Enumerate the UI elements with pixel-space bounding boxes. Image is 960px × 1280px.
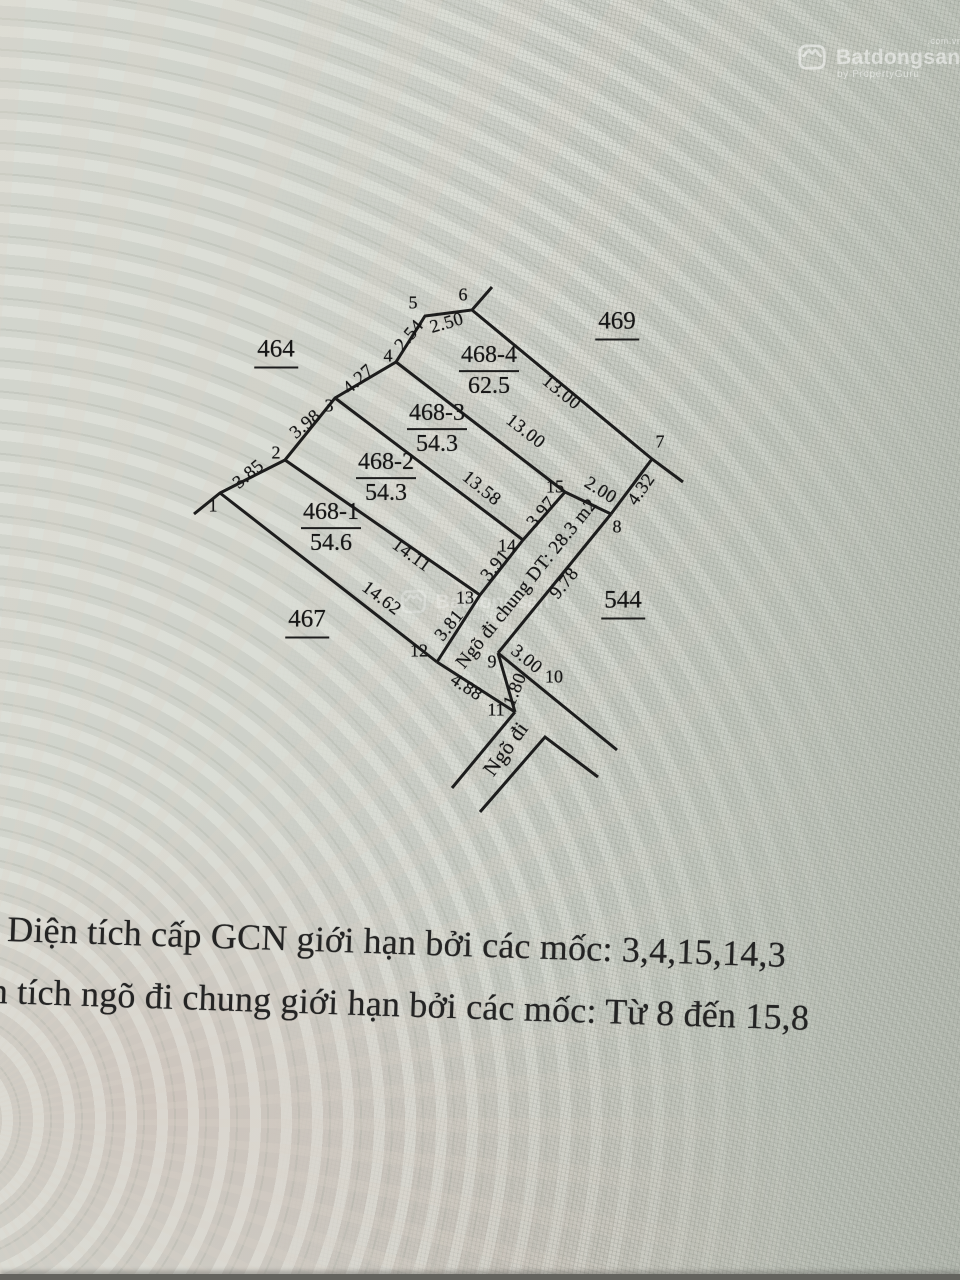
parcel-label-468-1: 468-1 54.6	[301, 499, 361, 557]
parcel-area: 54.6	[301, 530, 361, 557]
parcel-area: 54.3	[356, 480, 416, 507]
neighbor-parcel-label-469: 469	[595, 308, 639, 341]
parcel-id: 468-4	[459, 342, 519, 372]
point-label-8: 8	[613, 517, 622, 538]
parcel-id: 468-1	[301, 499, 361, 529]
parcel-id: 468-3	[407, 400, 467, 430]
point-label-9: 9	[488, 652, 497, 673]
point-label-15: 15	[546, 477, 564, 498]
parcel-label-468-3: 468-3 54.3	[407, 400, 467, 458]
neighbor-parcel-label-467: 467	[285, 606, 329, 639]
point-label-10: 10	[545, 667, 563, 688]
parcel-area: 62.5	[459, 373, 519, 400]
point-label-3: 3	[325, 396, 334, 417]
cadastral-sketch-photo: Batdongsan .com.vn by PropertyGuru Batdo…	[0, 0, 960, 1280]
point-label-13: 13	[456, 588, 474, 609]
point-label-6: 6	[459, 285, 468, 306]
point-label-4: 4	[384, 346, 393, 367]
point-label-5: 5	[409, 293, 418, 314]
point-label-1: 1	[209, 496, 218, 517]
parcel-area: 54.3	[407, 431, 467, 458]
neighbor-parcel-label-544: 544	[601, 587, 645, 620]
neighbor-parcel-label-464: 464	[254, 336, 298, 369]
point-label-12: 12	[410, 641, 428, 662]
point-label-2: 2	[272, 443, 281, 464]
parcel-label-468-4: 468-4 62.5	[459, 342, 519, 400]
point-label-7: 7	[656, 432, 665, 453]
photo-bottom-edge	[0, 1274, 960, 1280]
